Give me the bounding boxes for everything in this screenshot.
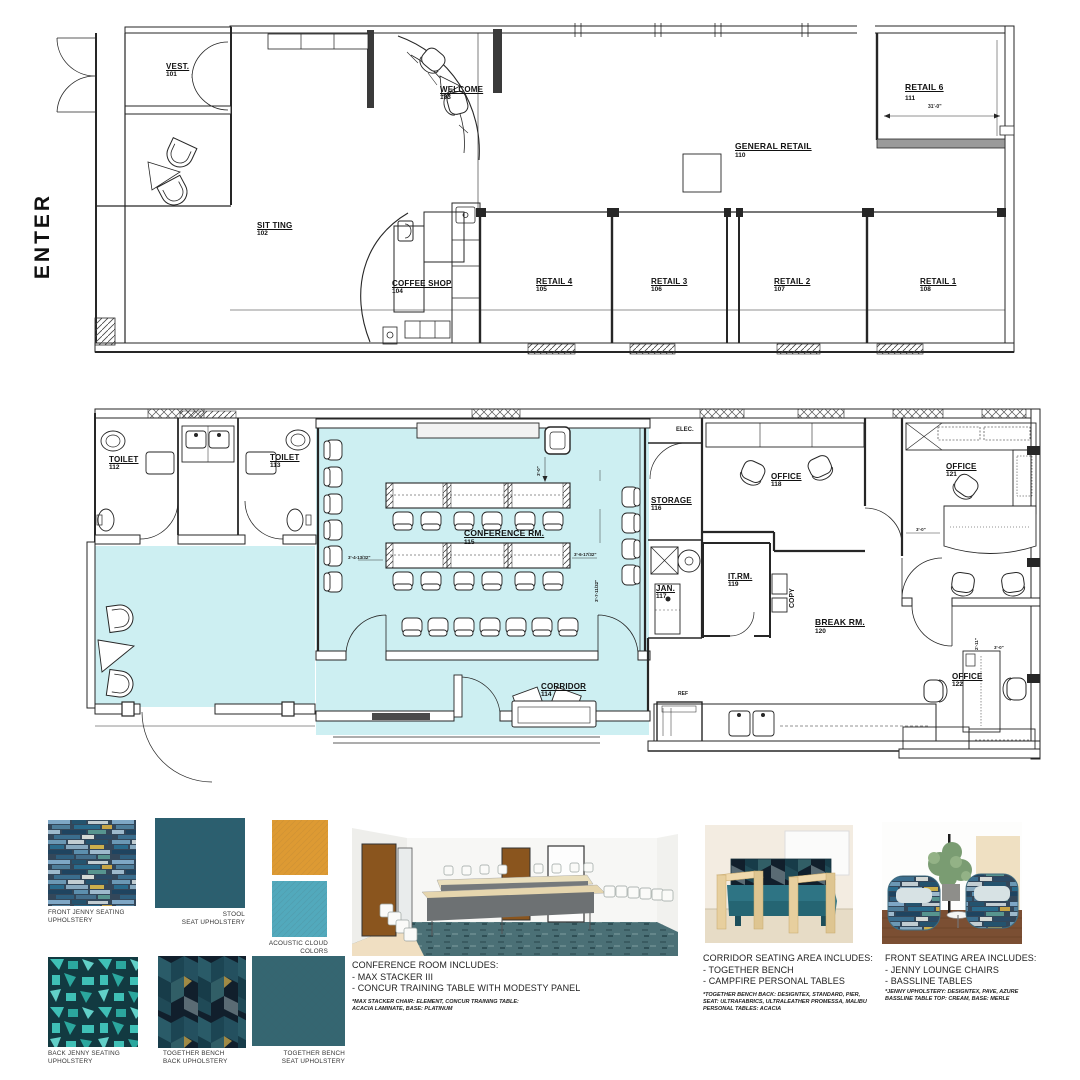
section-fine-print: *MAX STACKER CHAIR: ELEMENT, CONCUR TRAI… bbox=[352, 999, 682, 1013]
floor-plan-linework bbox=[0, 0, 1080, 800]
section-heading: CORRIDOR SEATING AREA INCLUDES: bbox=[703, 953, 888, 965]
room-label-welcome: WELCOME 103 bbox=[440, 85, 483, 102]
swatch-label-stool: STOOL SEAT UPHOLSTERY bbox=[145, 911, 245, 927]
room-label-retail3: RETAIL 3 106 bbox=[651, 277, 687, 294]
section-bullet: - CAMPFIRE PERSONAL TABLES bbox=[703, 976, 888, 988]
section-bullet: - MAX STACKER III bbox=[352, 972, 682, 984]
room-label-office-118: OFFICE 118 bbox=[771, 472, 802, 489]
room-label-storage: STORAGE 116 bbox=[651, 496, 692, 513]
corridor-bench-render-image bbox=[705, 825, 853, 948]
elec-label: ELEC. bbox=[676, 427, 694, 433]
dim-conf-right-v: 3'-7-11/32" bbox=[594, 580, 599, 602]
swatch-acoustic-orange bbox=[272, 820, 328, 880]
swatch-together-seat bbox=[252, 956, 345, 1051]
dim-office121: 3'-0" bbox=[916, 527, 926, 532]
swatch-label-acoustic-cloud: ACOUSTIC CLOUD COLORS bbox=[254, 940, 328, 956]
room-label-break-rm: BREAK RM. 120 bbox=[815, 618, 865, 635]
dim-retail6-width: 31'-0" bbox=[928, 104, 942, 110]
dim-conf-right: 3'-6-17/32" bbox=[574, 552, 596, 557]
front-seating-render-image bbox=[882, 822, 1022, 949]
copy-label: COPY bbox=[789, 588, 796, 608]
swatch-label-together-seat: TOGETHER BENCH SEAT UPHOLSTERY bbox=[250, 1050, 345, 1066]
section-bullet: - JENNY LOUNGE CHAIRS bbox=[885, 965, 1055, 977]
swatch-acoustic-teal bbox=[272, 881, 327, 942]
room-label-retail4: RETAIL 4 105 bbox=[536, 277, 572, 294]
swatch-label-together-back: TOGETHER BENCH BACK UPHOLSTERY bbox=[163, 1050, 227, 1066]
presentation-page: ENTER VEST. 101 SIT TING 102 WELCOME 103… bbox=[0, 0, 1080, 1080]
section-fine-print: *JENNY UPHOLSTERY: DESIGNTEX, PAVE, AZUR… bbox=[885, 989, 1055, 1003]
dim-office122-h: 3'-0" bbox=[994, 645, 1004, 650]
corridor-seating-includes-section: CORRIDOR SEATING AREA INCLUDES: - TOGETH… bbox=[703, 953, 888, 1013]
room-label-corridor: CORRIDOR 114 bbox=[541, 682, 586, 699]
room-label-it-rm: IT.RM. 119 bbox=[728, 572, 752, 589]
ref-label: REF bbox=[678, 691, 688, 697]
swatch-back-jenny bbox=[48, 957, 138, 1052]
section-fine-print: *TOGETHER BENCH BACK: DESIGNTEX, STANDAR… bbox=[703, 992, 888, 1013]
enter-label: ENTER bbox=[31, 174, 73, 298]
room-label-general-retail: GENERAL RETAIL 110 bbox=[735, 142, 812, 159]
room-label-vest: VEST. 101 bbox=[166, 62, 189, 79]
section-bullet: - BASSLINE TABLES bbox=[885, 976, 1055, 988]
room-label-jan: JAN. 117 bbox=[656, 584, 675, 601]
swatch-front-jenny bbox=[48, 820, 136, 911]
dim-office122-v: 2'-11" bbox=[974, 638, 979, 650]
room-label-sitting: SIT TING 102 bbox=[257, 221, 292, 238]
dim-conf-top: 3'-0" bbox=[536, 466, 541, 476]
swatch-stool-seat bbox=[155, 818, 245, 913]
room-label-retail1: RETAIL 1 108 bbox=[920, 277, 956, 294]
dim-conf-left: 3'-4-13/32" bbox=[348, 555, 370, 560]
conference-room-includes-section: CONFERENCE ROOM INCLUDES: - MAX STACKER … bbox=[352, 960, 682, 1013]
swatch-together-back bbox=[158, 956, 246, 1053]
room-label-office-121: OFFICE 121 bbox=[946, 462, 977, 479]
swatch-label-front-jenny: FRONT JENNY SEATING UPHOLSTERY bbox=[48, 909, 125, 925]
swatch-label-back-jenny: BACK JENNY SEATING UPHOLSTERY bbox=[48, 1050, 120, 1066]
room-label-conference: CONFERENCE RM. 115 bbox=[464, 529, 544, 546]
room-label-retail6: RETAIL 6 111 bbox=[905, 83, 944, 102]
front-seating-includes-section: FRONT SEATING AREA INCLUDES: - JENNY LOU… bbox=[885, 953, 1055, 1003]
section-heading: CONFERENCE ROOM INCLUDES: bbox=[352, 960, 682, 972]
section-heading: FRONT SEATING AREA INCLUDES: bbox=[885, 953, 1055, 965]
room-label-retail2: RETAIL 2 107 bbox=[774, 277, 810, 294]
room-label-office-122: OFFICE 122 bbox=[952, 672, 983, 689]
room-label-toilet-113: TOILET 113 bbox=[270, 453, 300, 470]
section-bullet: - CONCUR TRAINING TABLE WITH MODESTY PAN… bbox=[352, 983, 682, 995]
room-label-toilet-112: TOILET 112 bbox=[109, 455, 139, 472]
conference-room-render-image bbox=[352, 818, 678, 961]
room-label-coffee-shop: COFFEE SHOP 104 bbox=[392, 279, 452, 296]
section-bullet: - TOGETHER BENCH bbox=[703, 965, 888, 977]
top-plan bbox=[57, 23, 1014, 354]
